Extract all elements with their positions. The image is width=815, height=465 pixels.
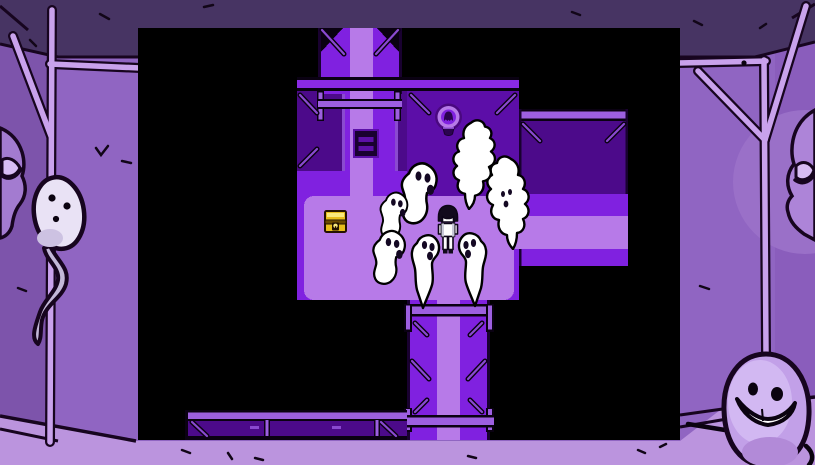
game-window [0, 0, 815, 465]
treasure-chest[interactable] [324, 209, 347, 234]
ghost-3 [368, 228, 408, 288]
player-character [435, 204, 461, 256]
ghost-7 [450, 118, 498, 210]
sprite-layer [138, 28, 680, 440]
game-viewport[interactable] [138, 28, 680, 440]
